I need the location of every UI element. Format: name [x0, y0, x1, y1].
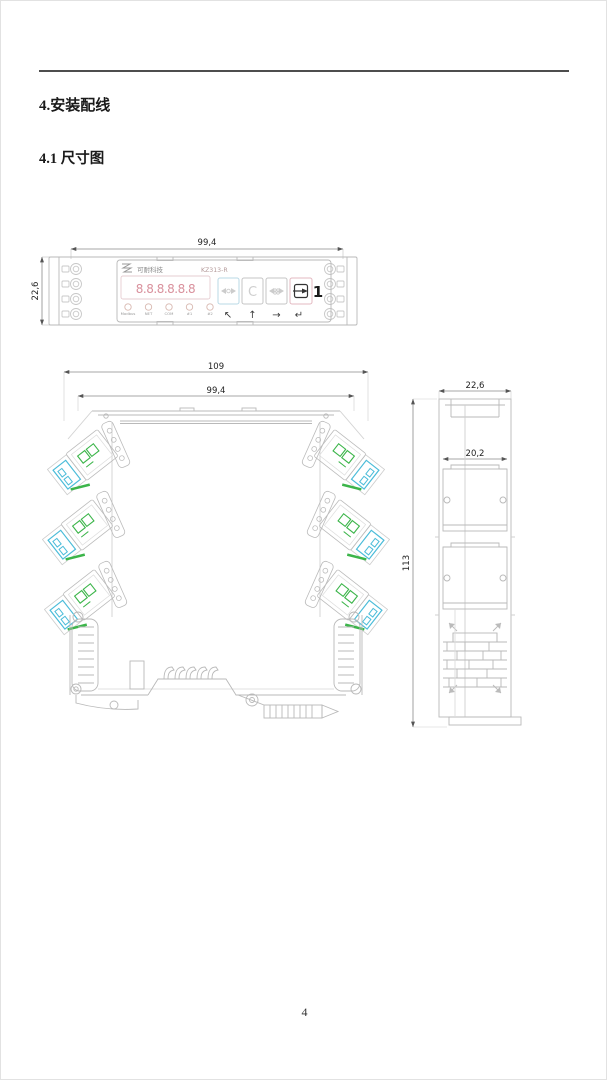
subsection-heading: 4.1 尺寸图	[39, 147, 104, 168]
front-dim-body	[78, 396, 354, 411]
side-dim-height	[413, 399, 447, 727]
clear-button-label: C	[248, 285, 257, 300]
led-label-net: NET	[145, 311, 153, 316]
set-dot-icon	[227, 289, 231, 293]
clover-icon	[277, 292, 279, 294]
side-body	[435, 399, 521, 725]
arrow-in-left2-icon	[269, 288, 274, 294]
top-dim-width	[71, 249, 343, 259]
side-terminal-section-2	[443, 543, 507, 609]
front-left-terminal-clusters	[41, 418, 140, 647]
nav-arrow-upleft: ↖	[224, 310, 232, 321]
side-din-clip	[443, 623, 507, 693]
front-lower-housing	[70, 612, 362, 718]
clover-icon	[274, 292, 276, 294]
led-label-com: COM	[165, 311, 174, 316]
led-label-modbus: Modbus	[121, 311, 136, 316]
top-right-terminals	[325, 264, 345, 320]
clover-icon	[277, 289, 279, 291]
nav-arrow-up: ↑	[248, 310, 256, 321]
enter-one-label: 1	[313, 283, 323, 301]
front-housing	[68, 408, 364, 617]
top-left-terminals	[62, 264, 82, 320]
din-slot	[130, 661, 144, 689]
front-view-drawing: 109 99,4	[56, 359, 376, 751]
led-label-ch2: #2	[207, 311, 213, 316]
side-foot	[449, 717, 521, 725]
arrow-in-right2-icon	[279, 288, 284, 294]
side-dim-inner-label: 20,2	[466, 449, 485, 459]
nav-arrow-right: →	[272, 310, 280, 321]
model-number: KZ313-R	[201, 267, 228, 274]
latch-left	[76, 695, 138, 709]
keypad-buttons	[218, 278, 312, 304]
document-page: 4.安装配线 4.1 尺寸图 99,4 22,6	[0, 0, 607, 1080]
brand-logo-icon	[122, 264, 132, 272]
top-view-drawing: 99,4 22,6	[29, 233, 377, 339]
nav-arrow-enter: ↵	[295, 310, 303, 321]
arrow-in-right-icon	[231, 288, 236, 294]
ribbed-grip-right	[334, 619, 360, 691]
side-dim-depth-label: 22,6	[466, 381, 485, 391]
clover-icon	[274, 289, 276, 291]
side-view-drawing: 22,6 113 20,2	[399, 377, 534, 739]
status-leds	[125, 304, 213, 310]
page-number: 4	[1, 1005, 607, 1020]
section-heading: 4.安装配线	[39, 94, 110, 115]
din-hooks	[164, 667, 218, 679]
front-dim-body-label: 99,4	[207, 386, 226, 396]
ribbed-grip-left	[72, 619, 98, 691]
brand-name: 可耐科技	[137, 265, 164, 274]
side-terminal-section-1	[443, 465, 507, 531]
din-foot-outline	[81, 679, 346, 695]
top-dim-width-label: 99,4	[198, 238, 217, 248]
side-dim-height-label: 113	[402, 555, 412, 571]
header-rule	[39, 70, 569, 72]
front-dim-overall	[64, 372, 368, 421]
latch-right	[238, 695, 338, 718]
front-right-terminal-clusters	[292, 418, 391, 647]
segment-display-value: 8.8.8.8.8.8	[136, 282, 195, 296]
front-dim-overall-label: 109	[208, 362, 224, 372]
arrow-in-left-icon	[221, 288, 226, 294]
side-dim-depth	[439, 391, 511, 399]
led-label-ch1: #1	[187, 311, 193, 316]
top-dim-depth-label: 22,6	[31, 282, 41, 301]
